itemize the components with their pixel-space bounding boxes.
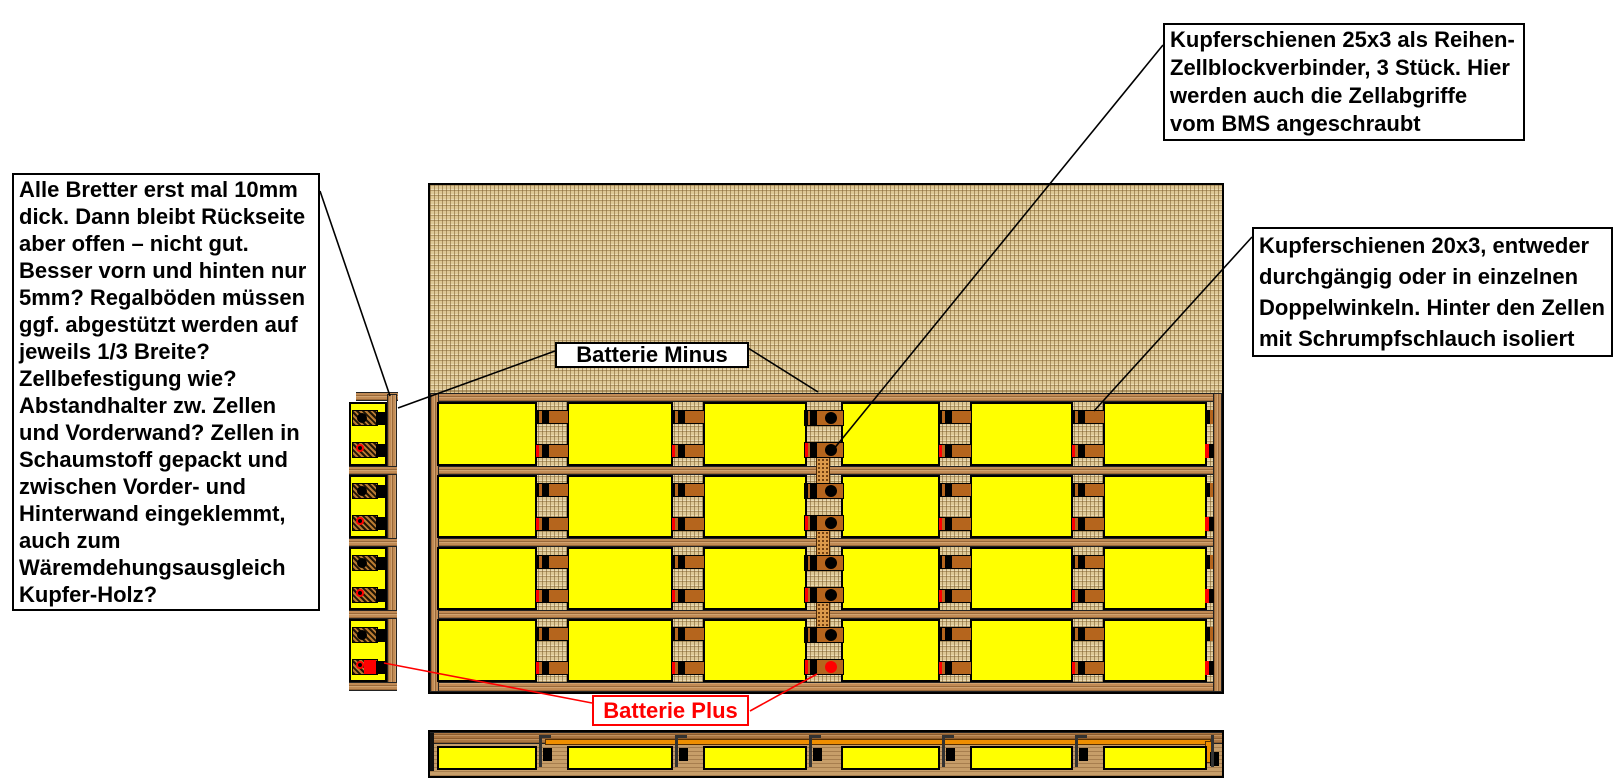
battery-plus-label: Batterie Plus <box>592 695 749 726</box>
battery-cell <box>970 402 1073 466</box>
minus-stripe <box>1072 556 1075 568</box>
angle-bracket-bolt <box>813 748 822 761</box>
cell-connector-busbar <box>535 661 569 675</box>
angle-bracket <box>539 735 542 767</box>
battery-cell <box>703 619 807 682</box>
plus-stripe <box>1072 662 1075 674</box>
bolt-head <box>357 413 367 423</box>
bolt-nut <box>810 588 817 602</box>
cell-connector-busbar <box>535 444 569 458</box>
terminal-nut <box>376 589 386 602</box>
bottom-view-cell <box>567 746 673 770</box>
cell-terminal-minus <box>352 483 378 499</box>
bottom-view-cell <box>437 746 537 770</box>
cell-connector-busbar <box>535 589 569 603</box>
plus-bolt-head <box>356 444 364 452</box>
cell-connector-busbar <box>1071 661 1105 675</box>
minus-stripe <box>805 556 808 570</box>
minus-stripe <box>536 628 539 640</box>
bolt-nut <box>1078 518 1085 530</box>
side-view-shelf <box>349 466 397 475</box>
angle-bracket <box>1075 735 1078 767</box>
minus-stripe <box>1072 484 1075 496</box>
terminal-nut <box>376 557 386 570</box>
minus-stripe <box>805 484 808 498</box>
cell-connector-busbar <box>1071 483 1105 497</box>
angle-bracket-bolt <box>946 748 955 761</box>
cell-connector-busbar <box>938 555 972 569</box>
bolt-nut <box>542 445 549 457</box>
bolt-nut <box>810 628 817 642</box>
cell-connector-busbar <box>1071 627 1105 641</box>
series-connector-strip <box>816 603 830 629</box>
cell-connector-busbar <box>938 410 972 424</box>
bolt-nut <box>810 484 817 498</box>
cell-connector-busbar <box>671 444 705 458</box>
angle-bracket <box>675 735 678 767</box>
side-view-bottom-board <box>349 682 397 691</box>
backboard-panel <box>430 185 1222 391</box>
angle-bracket-bolt <box>679 748 688 761</box>
cell-connector-busbar <box>938 444 972 458</box>
bolt-nut <box>678 445 685 457</box>
cell-connector-busbar <box>535 410 569 424</box>
battery-cell <box>970 619 1073 682</box>
bolt-nut <box>678 556 685 568</box>
cell-connector-busbar <box>1071 517 1105 531</box>
battery-cell <box>703 475 807 538</box>
minus-stripe <box>536 411 539 423</box>
bolt-head <box>357 486 367 496</box>
minus-stripe <box>672 628 675 640</box>
edge-terminal-plus <box>1209 444 1214 458</box>
cell-connector-busbar <box>535 517 569 531</box>
cell-terminal-plus <box>352 515 378 531</box>
battery-cell <box>841 619 940 682</box>
cell-terminal-minus <box>352 410 378 426</box>
cell-connector-busbar <box>671 517 705 531</box>
plus-stripe <box>672 590 675 602</box>
plus-stripe <box>672 445 675 457</box>
battery-cell <box>437 547 537 610</box>
plus-stripe <box>939 445 942 457</box>
series-connector-strip <box>816 458 830 485</box>
bolt-nut <box>1078 484 1085 496</box>
series-connector-busbar <box>804 442 844 458</box>
cell-connector-busbar <box>671 589 705 603</box>
plus-stripe <box>1072 518 1075 530</box>
plus-stripe <box>805 443 808 457</box>
plus-bolt-head <box>356 661 364 669</box>
series-connector-busbar <box>804 659 844 675</box>
angle-bracket <box>1211 735 1214 767</box>
bolt-nut <box>1078 628 1085 640</box>
bolt-nut <box>678 590 685 602</box>
battery-cell <box>437 619 537 682</box>
bottom-view-cell <box>970 746 1073 770</box>
cell-connector-busbar <box>671 627 705 641</box>
bolt-nut <box>945 662 952 674</box>
bolt-head <box>357 558 367 568</box>
minus-stripe <box>939 411 942 423</box>
battery-cell <box>567 402 673 466</box>
bolt-nut <box>542 518 549 530</box>
plus-stripe <box>805 516 808 530</box>
battery-cell <box>841 402 940 466</box>
battery-cell <box>1103 547 1207 610</box>
plus-stripe <box>536 590 539 602</box>
cell-connector-busbar <box>938 627 972 641</box>
bolt-nut <box>945 445 952 457</box>
terminal-nut <box>376 517 386 530</box>
plus-stripe <box>805 660 808 674</box>
minus-stripe <box>805 628 808 642</box>
note-busbar-20x3: Kupferschienen 20x3, entweder durchgängi… <box>1252 227 1613 357</box>
angle-bracket-bolt <box>543 748 552 761</box>
series-connector-strip <box>816 531 830 557</box>
plus-bolt-head <box>825 661 837 673</box>
battery-cell <box>1103 475 1207 538</box>
edge-terminal-copper <box>1210 555 1213 569</box>
cell-connector-busbar <box>671 483 705 497</box>
plus-stripe <box>1072 445 1075 457</box>
battery-cell <box>841 547 940 610</box>
bolt-nut <box>542 411 549 423</box>
battery-minus-label: Batterie Minus <box>555 342 749 368</box>
battery-cell <box>970 547 1073 610</box>
cell-connector-busbar <box>671 661 705 675</box>
plus-bolt-head <box>356 589 364 597</box>
bolt-nut <box>1078 411 1085 423</box>
minus-stripe <box>939 628 942 640</box>
minus-stripe <box>536 556 539 568</box>
plus-stripe <box>1072 590 1075 602</box>
cell-connector-busbar <box>938 589 972 603</box>
bolt-head <box>825 485 837 497</box>
edge-terminal-plus <box>1209 517 1214 531</box>
bolt-nut <box>945 556 952 568</box>
bolt-head <box>825 412 837 424</box>
bolt-head <box>825 629 837 641</box>
cell-terminal-plus <box>352 442 378 458</box>
cell-connector-busbar <box>671 410 705 424</box>
plus-stripe <box>536 445 539 457</box>
cell-connector-busbar <box>535 627 569 641</box>
bolt-head <box>825 589 837 601</box>
edge-terminal-plus <box>1209 661 1214 675</box>
minus-stripe <box>805 411 808 425</box>
edge-terminal-copper <box>1210 627 1213 641</box>
battery-cell <box>567 547 673 610</box>
battery-cell <box>437 402 537 466</box>
bottom-view-left-wall <box>430 733 434 771</box>
plus-stripe <box>805 588 808 602</box>
bolt-nut <box>542 662 549 674</box>
bolt-nut <box>542 590 549 602</box>
edge-terminal-copper <box>1210 410 1213 424</box>
plus-stripe <box>672 518 675 530</box>
battery-cell <box>1103 402 1207 466</box>
bolt-nut <box>945 628 952 640</box>
side-view-shelf <box>349 610 397 619</box>
bolt-nut <box>678 411 685 423</box>
bottom-view-cell <box>1103 746 1207 770</box>
plus-stripe <box>939 518 942 530</box>
angle-bracket <box>942 735 945 767</box>
series-connector-busbar <box>804 483 844 499</box>
bolt-nut <box>810 516 817 530</box>
side-view-shelf <box>349 538 397 547</box>
bolt-nut <box>810 411 817 425</box>
minus-stripe <box>939 556 942 568</box>
bolt-nut <box>678 518 685 530</box>
series-connector-busbar <box>804 410 844 426</box>
series-connector-busbar <box>804 627 844 643</box>
minus-stripe <box>1072 628 1075 640</box>
cell-connector-busbar <box>535 555 569 569</box>
cell-connector-busbar <box>1071 555 1105 569</box>
minus-stripe <box>1072 411 1075 423</box>
bottom-view-cell <box>703 746 807 770</box>
bolt-nut <box>1078 445 1085 457</box>
bolt-nut <box>945 590 952 602</box>
cell-connector-busbar <box>671 555 705 569</box>
terminal-nut <box>376 629 386 642</box>
series-connector-busbar <box>804 515 844 531</box>
bolt-nut <box>542 628 549 640</box>
cell-connector-busbar <box>535 483 569 497</box>
series-connector-busbar <box>804 555 844 571</box>
battery-cell <box>970 475 1073 538</box>
bolt-nut <box>945 484 952 496</box>
bottom-view-cell <box>841 746 940 770</box>
minus-stripe <box>536 484 539 496</box>
edge-terminal-plus <box>1209 589 1214 603</box>
cell-connector-busbar <box>938 517 972 531</box>
bolt-nut <box>1078 556 1085 568</box>
bolt-nut <box>542 484 549 496</box>
cell-connector-busbar <box>1071 589 1105 603</box>
plus-stripe <box>536 662 539 674</box>
plus-bolt-head <box>356 517 364 525</box>
bolt-nut <box>542 556 549 568</box>
angle-bracket-bolt <box>1079 748 1088 761</box>
battery-cell <box>437 475 537 538</box>
note-boards: Alle Bretter erst mal 10mm dick. Dann bl… <box>12 173 320 611</box>
cell-connector-busbar <box>1071 444 1105 458</box>
bolt-nut <box>810 443 817 457</box>
bolt-head <box>825 444 837 456</box>
battery-cell <box>841 475 940 538</box>
battery-cell <box>703 402 807 466</box>
terminal-nut <box>376 444 386 457</box>
minus-stripe <box>939 484 942 496</box>
minus-stripe <box>672 484 675 496</box>
bolt-head <box>825 517 837 529</box>
bolt-nut <box>678 628 685 640</box>
bolt-nut <box>678 484 685 496</box>
battery-cell <box>703 547 807 610</box>
battery-cell <box>1103 619 1207 682</box>
plus-stripe <box>536 518 539 530</box>
copper-busbar-top <box>545 739 1211 745</box>
terminal-nut <box>376 661 386 674</box>
bolt-nut <box>1078 662 1085 674</box>
minus-stripe <box>672 411 675 423</box>
bolt-nut <box>678 662 685 674</box>
battery-plus-terminal-mark <box>364 660 376 674</box>
shelf-board <box>430 393 1222 402</box>
cell-connector-busbar <box>1071 410 1105 424</box>
edge-terminal-copper <box>1210 483 1213 497</box>
bolt-nut <box>945 411 952 423</box>
cell-terminal-plus <box>352 587 378 603</box>
cell-connector-busbar <box>938 483 972 497</box>
cell-connector-busbar <box>938 661 972 675</box>
plus-stripe <box>672 662 675 674</box>
battery-cell <box>567 619 673 682</box>
bolt-head <box>825 557 837 569</box>
bottom-board <box>430 682 1222 692</box>
bolt-nut <box>945 518 952 530</box>
cell-terminal-minus <box>352 627 378 643</box>
bolt-head <box>357 630 367 640</box>
terminal-nut <box>376 412 386 425</box>
side-wall-board-right <box>1213 393 1222 692</box>
battery-cell <box>567 475 673 538</box>
plus-stripe <box>939 590 942 602</box>
diagram-canvas: Alle Bretter erst mal 10mm dick. Dann bl… <box>0 0 1619 780</box>
bolt-nut <box>810 556 817 570</box>
cell-terminal-minus <box>352 555 378 571</box>
note-busbar-25x3: Kupferschienen 25x3 als Reihen-Zellblock… <box>1163 23 1525 141</box>
bolt-nut <box>810 660 817 674</box>
plus-stripe <box>939 662 942 674</box>
terminal-nut <box>376 485 386 498</box>
series-connector-busbar <box>804 587 844 603</box>
bolt-nut <box>1078 590 1085 602</box>
minus-stripe <box>672 556 675 568</box>
angle-bracket <box>809 735 812 767</box>
